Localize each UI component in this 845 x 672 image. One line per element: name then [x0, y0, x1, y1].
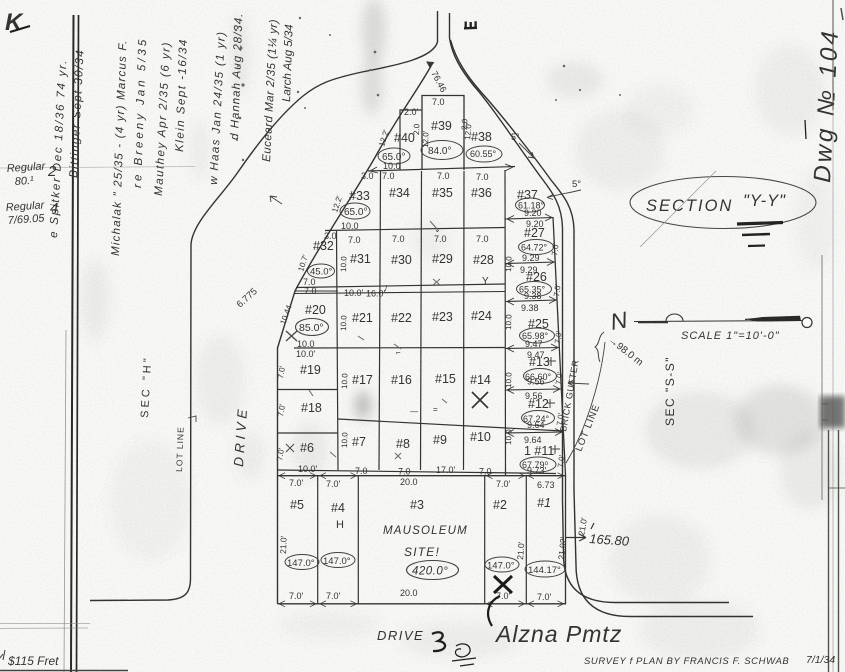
svg-text:9.73': 9.73' — [527, 466, 547, 476]
svg-text:#30: #30 — [391, 253, 412, 267]
svg-text:7.0: 7.0 — [432, 97, 445, 107]
svg-text:#20: #20 — [305, 303, 326, 317]
svg-text:7.0: 7.0 — [398, 467, 411, 477]
svg-text:9.64: 9.64 — [527, 420, 545, 430]
svg-text:7.0': 7.0' — [289, 591, 304, 601]
svg-text:$115 Fret: $115 Fret — [7, 654, 59, 668]
svg-text:#10: #10 — [470, 430, 491, 444]
svg-text:10.0': 10.0' — [344, 288, 364, 298]
svg-text:7.0: 7.0 — [476, 172, 489, 182]
svg-text:"Y-Y": "Y-Y" — [743, 192, 786, 210]
svg-text:#19: #19 — [300, 363, 321, 377]
svg-text:7.0': 7.0' — [550, 242, 561, 256]
svg-text:2: 2 — [47, 163, 57, 180]
svg-text:#13: #13 — [529, 355, 550, 369]
svg-text:10.0: 10.0 — [340, 432, 350, 448]
svg-text:9.38: 9.38 — [521, 303, 539, 313]
svg-text:#18: #18 — [301, 401, 322, 415]
svg-text:#7: #7 — [352, 435, 366, 449]
svg-text:#24: #24 — [471, 309, 492, 323]
svg-text:2.0: 2.0 — [412, 123, 421, 135]
svg-text:#31: #31 — [350, 252, 371, 266]
svg-text:SCALE 1"=10'-0": SCALE 1"=10'-0" — [681, 330, 780, 342]
svg-text:#32: #32 — [313, 239, 334, 253]
svg-text:MAUSOLEUM: MAUSOLEUM — [383, 525, 468, 537]
svg-text:SITE!: SITE! — [404, 545, 440, 559]
svg-text:#12: #12 — [528, 397, 549, 411]
svg-text:7.0: 7.0 — [382, 171, 395, 181]
svg-text:7.0': 7.0' — [537, 592, 552, 602]
svg-text:147.0°: 147.0° — [287, 558, 315, 569]
svg-text:21.0': 21.0' — [278, 535, 289, 554]
svg-text:#1: #1 — [537, 496, 551, 510]
svg-text:#6: #6 — [300, 441, 314, 455]
svg-text:7.0: 7.0 — [355, 466, 368, 476]
svg-text:7.0: 7.0 — [479, 467, 492, 477]
svg-text:9.29: 9.29 — [522, 253, 540, 263]
svg-text:85.0°: 85.0° — [299, 322, 324, 334]
svg-text:—: — — [410, 407, 418, 416]
svg-text:10.0: 10.0 — [297, 339, 315, 349]
svg-text:10.0: 10.0 — [504, 256, 514, 272]
svg-text:#29: #29 — [432, 252, 453, 266]
svg-text:9.56: 9.56 — [527, 377, 545, 387]
svg-text:65.0°: 65.0° — [344, 207, 367, 218]
svg-text:#17: #17 — [352, 373, 373, 387]
svg-text:147.0°: 147.0° — [323, 556, 351, 567]
svg-text:#2: #2 — [493, 498, 507, 512]
svg-text:7.0': 7.0' — [552, 283, 563, 297]
svg-text:64.72°: 64.72° — [521, 243, 548, 253]
svg-text:#39: #39 — [431, 119, 452, 133]
svg-text:165.80: 165.80 — [589, 531, 630, 549]
svg-text:H: H — [336, 519, 344, 531]
svg-text:21.0': 21.0' — [515, 541, 526, 560]
svg-text:10.0: 10.0 — [339, 256, 349, 272]
svg-text:20.0: 20.0 — [400, 477, 418, 487]
svg-text:17.0': 17.0' — [436, 465, 456, 475]
svg-text:1 #11: 1 #11 — [524, 444, 554, 458]
svg-text:7/1/34: 7/1/34 — [806, 654, 835, 666]
svg-text:#4: #4 — [331, 501, 345, 515]
svg-text:5°: 5° — [511, 132, 520, 142]
svg-text:84.0°: 84.0° — [428, 146, 451, 157]
svg-text:#5: #5 — [290, 498, 304, 512]
svg-text:2.0': 2.0' — [404, 107, 419, 117]
svg-text:10.0: 10.0 — [504, 314, 514, 330]
svg-text:45.0°: 45.0° — [310, 267, 332, 278]
svg-text:7.0: 7.0 — [304, 286, 317, 296]
svg-text:12.0': 12.0' — [421, 130, 431, 148]
svg-text:#34: #34 — [389, 186, 410, 200]
svg-text:#3: #3 — [410, 498, 424, 512]
svg-text:LOT LINE: LOT LINE — [174, 426, 186, 472]
svg-text:420.0°: 420.0° — [412, 566, 448, 578]
svg-text:SURVEY f PLAN BY FRANCIS F. SC: SURVEY f PLAN BY FRANCIS F. SCHWAB — [584, 656, 789, 667]
svg-text:7.0: 7.0 — [476, 234, 489, 244]
svg-text:#16: #16 — [391, 373, 412, 387]
svg-text:Y: Y — [482, 276, 489, 287]
svg-text:Alzna Pmtz: Alzna Pmtz — [494, 621, 622, 647]
svg-text:#9: #9 — [433, 433, 447, 447]
svg-text:#35: #35 — [432, 186, 453, 200]
svg-text:#21: #21 — [352, 311, 373, 325]
svg-text:10.0: 10.0 — [339, 315, 349, 331]
svg-text:80.¹: 80.¹ — [14, 175, 34, 188]
svg-text:147.0°: 147.0° — [487, 561, 515, 572]
svg-text:9.38: 9.38 — [524, 291, 542, 301]
svg-text:7.0': 7.0' — [326, 591, 341, 601]
svg-text:SEC "S-S": SEC "S-S" — [663, 356, 677, 426]
svg-text:7.0': 7.0' — [553, 330, 564, 344]
svg-text:60.55°: 60.55° — [470, 149, 497, 159]
svg-text:7.0: 7.0 — [392, 234, 405, 244]
svg-text:=: = — [433, 405, 438, 414]
svg-text:7.0: 7.0 — [437, 171, 450, 181]
svg-text:#15: #15 — [435, 372, 456, 386]
svg-text:9.47: 9.47 — [525, 339, 543, 349]
svg-text:7.0': 7.0' — [326, 479, 341, 489]
svg-text:7.0: 7.0 — [348, 235, 361, 245]
svg-text:⌐: ⌐ — [396, 348, 401, 357]
svg-text:#27: #27 — [524, 226, 545, 240]
svg-text:#28: #28 — [473, 253, 494, 267]
svg-text:#14: #14 — [470, 373, 491, 387]
svg-text:10.0': 10.0' — [296, 349, 316, 359]
svg-text:#8: #8 — [396, 437, 410, 451]
svg-text:⌄: ⌄ — [434, 225, 441, 234]
svg-text:20.0: 20.0 — [400, 588, 418, 598]
svg-text:16.0': 16.0' — [366, 289, 386, 299]
svg-text:4: 4 — [50, 200, 58, 217]
svg-text:10.0: 10.0 — [340, 373, 350, 389]
svg-text:#23: #23 — [432, 310, 453, 324]
svg-text:3.0: 3.0 — [361, 171, 374, 181]
svg-text:2.0: 2.0 — [460, 118, 469, 130]
svg-text:144.17°: 144.17° — [528, 565, 561, 576]
svg-text:10.0: 10.0 — [504, 372, 514, 388]
svg-text:10.0: 10.0 — [504, 429, 514, 445]
svg-text:7.0': 7.0' — [555, 412, 566, 426]
svg-text:#33: #33 — [349, 189, 370, 203]
svg-text:6.73: 6.73 — [537, 480, 555, 490]
svg-text:10.0': 10.0' — [298, 464, 318, 474]
svg-text:#36: #36 — [471, 186, 492, 200]
svg-text:7.0: 7.0 — [434, 234, 447, 244]
svg-text:7.0': 7.0' — [554, 371, 565, 385]
svg-text:7.0': 7.0' — [289, 478, 304, 488]
svg-text:9.20: 9.20 — [524, 208, 542, 218]
svg-text:10.0: 10.0 — [341, 221, 359, 231]
svg-text:DRIVE: DRIVE — [377, 628, 424, 643]
svg-text:7.0': 7.0' — [496, 479, 511, 489]
svg-text:10.0: 10.0 — [383, 161, 401, 171]
svg-text:SECTION: SECTION — [646, 197, 733, 215]
svg-text:#38: #38 — [471, 130, 492, 144]
svg-text:7.0': 7.0' — [556, 454, 567, 468]
svg-text:K: K — [5, 9, 24, 36]
svg-text:#22: #22 — [391, 311, 412, 325]
svg-text:5°: 5° — [572, 179, 581, 190]
